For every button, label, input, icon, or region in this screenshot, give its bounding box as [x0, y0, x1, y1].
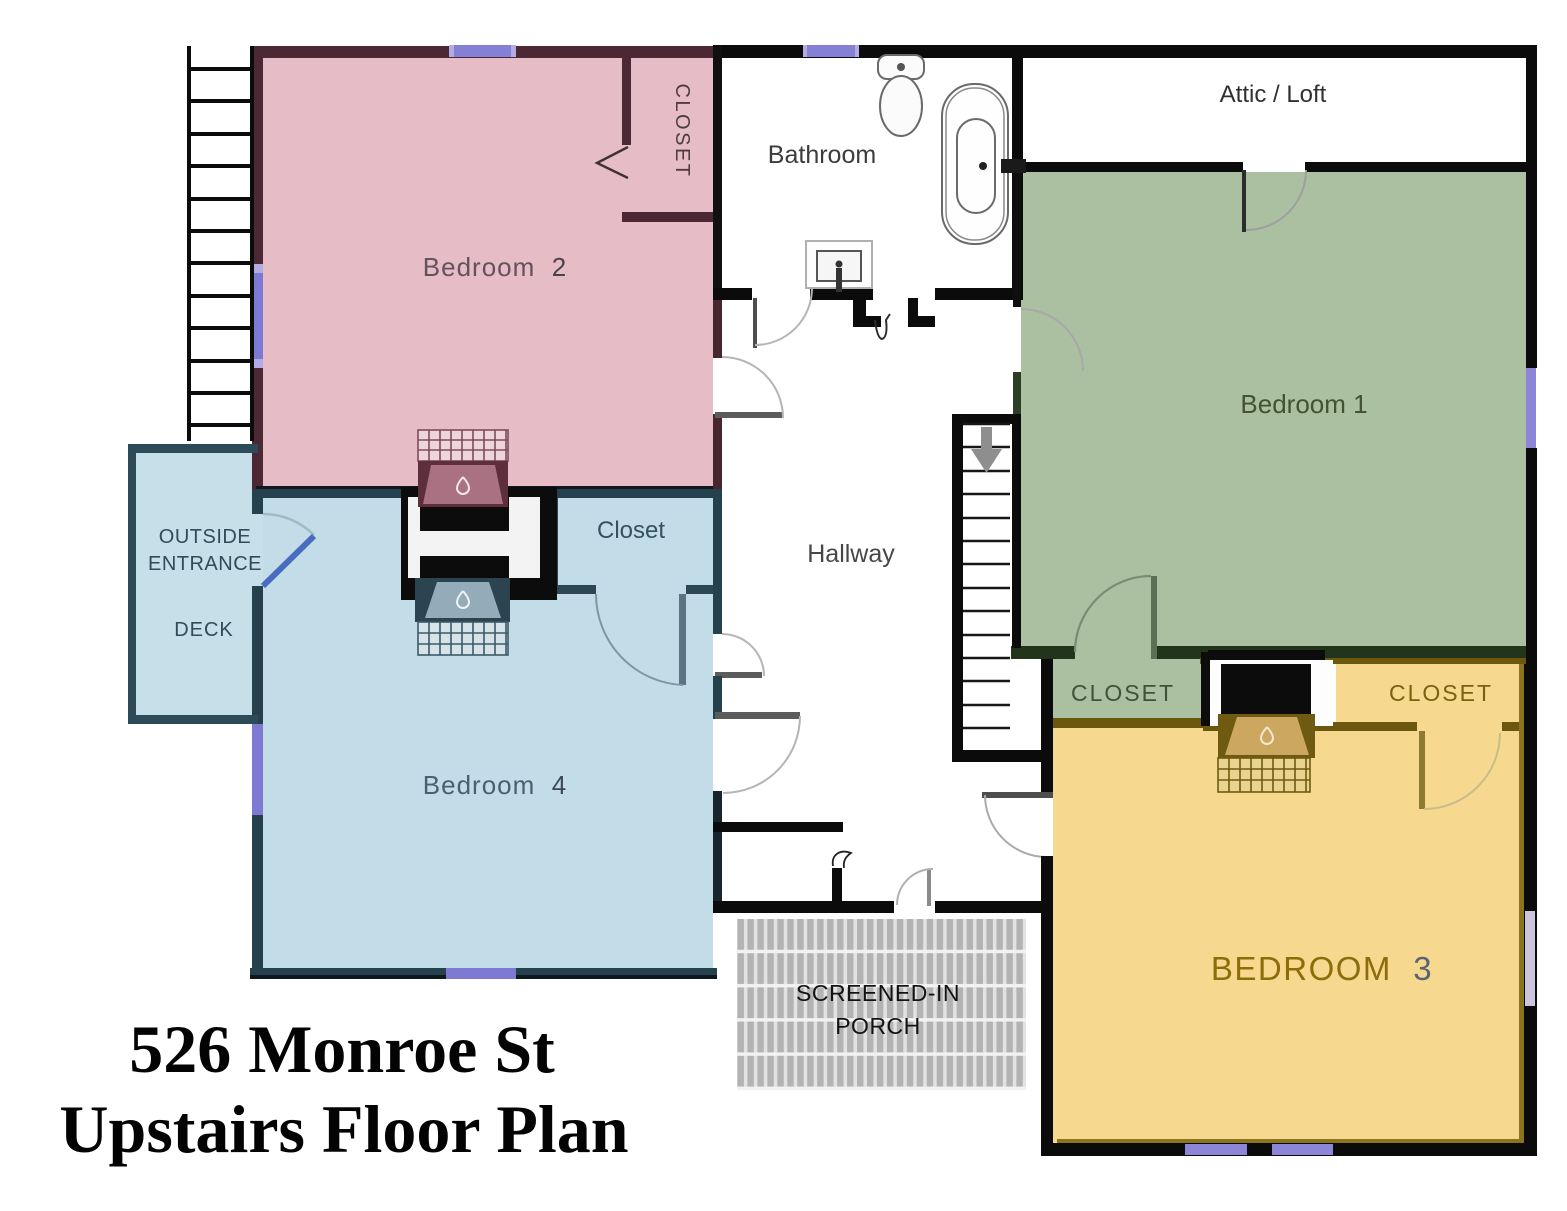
svg-text:Bedroom 4: Bedroom 4: [423, 770, 567, 800]
svg-text:OUTSIDE: OUTSIDE: [159, 526, 251, 548]
svg-text:Upstairs Floor Plan: Upstairs Floor Plan: [59, 1091, 628, 1167]
svg-text:SCREENED-IN: SCREENED-IN: [796, 980, 960, 1006]
svg-text:ENTRANCE: ENTRANCE: [148, 553, 262, 575]
svg-text:Bedroom 1: Bedroom 1: [1240, 389, 1367, 419]
svg-text:CLOSET: CLOSET: [671, 83, 693, 178]
svg-text:Bathroom: Bathroom: [768, 141, 876, 169]
svg-text:BEDROOM 3: BEDROOM 3: [1211, 950, 1433, 987]
svg-text:CLOSET: CLOSET: [1389, 680, 1493, 706]
svg-text:Bedroom 2: Bedroom 2: [423, 252, 567, 282]
svg-text:Attic / Loft: Attic / Loft: [1220, 81, 1327, 108]
svg-text:CLOSET: CLOSET: [1071, 680, 1175, 706]
svg-text:Closet: Closet: [597, 517, 665, 544]
svg-text:DECK: DECK: [174, 619, 234, 641]
svg-text:PORCH: PORCH: [835, 1013, 921, 1039]
svg-text:526 Monroe St: 526 Monroe St: [129, 1011, 555, 1087]
svg-text:Hallway: Hallway: [807, 540, 895, 568]
